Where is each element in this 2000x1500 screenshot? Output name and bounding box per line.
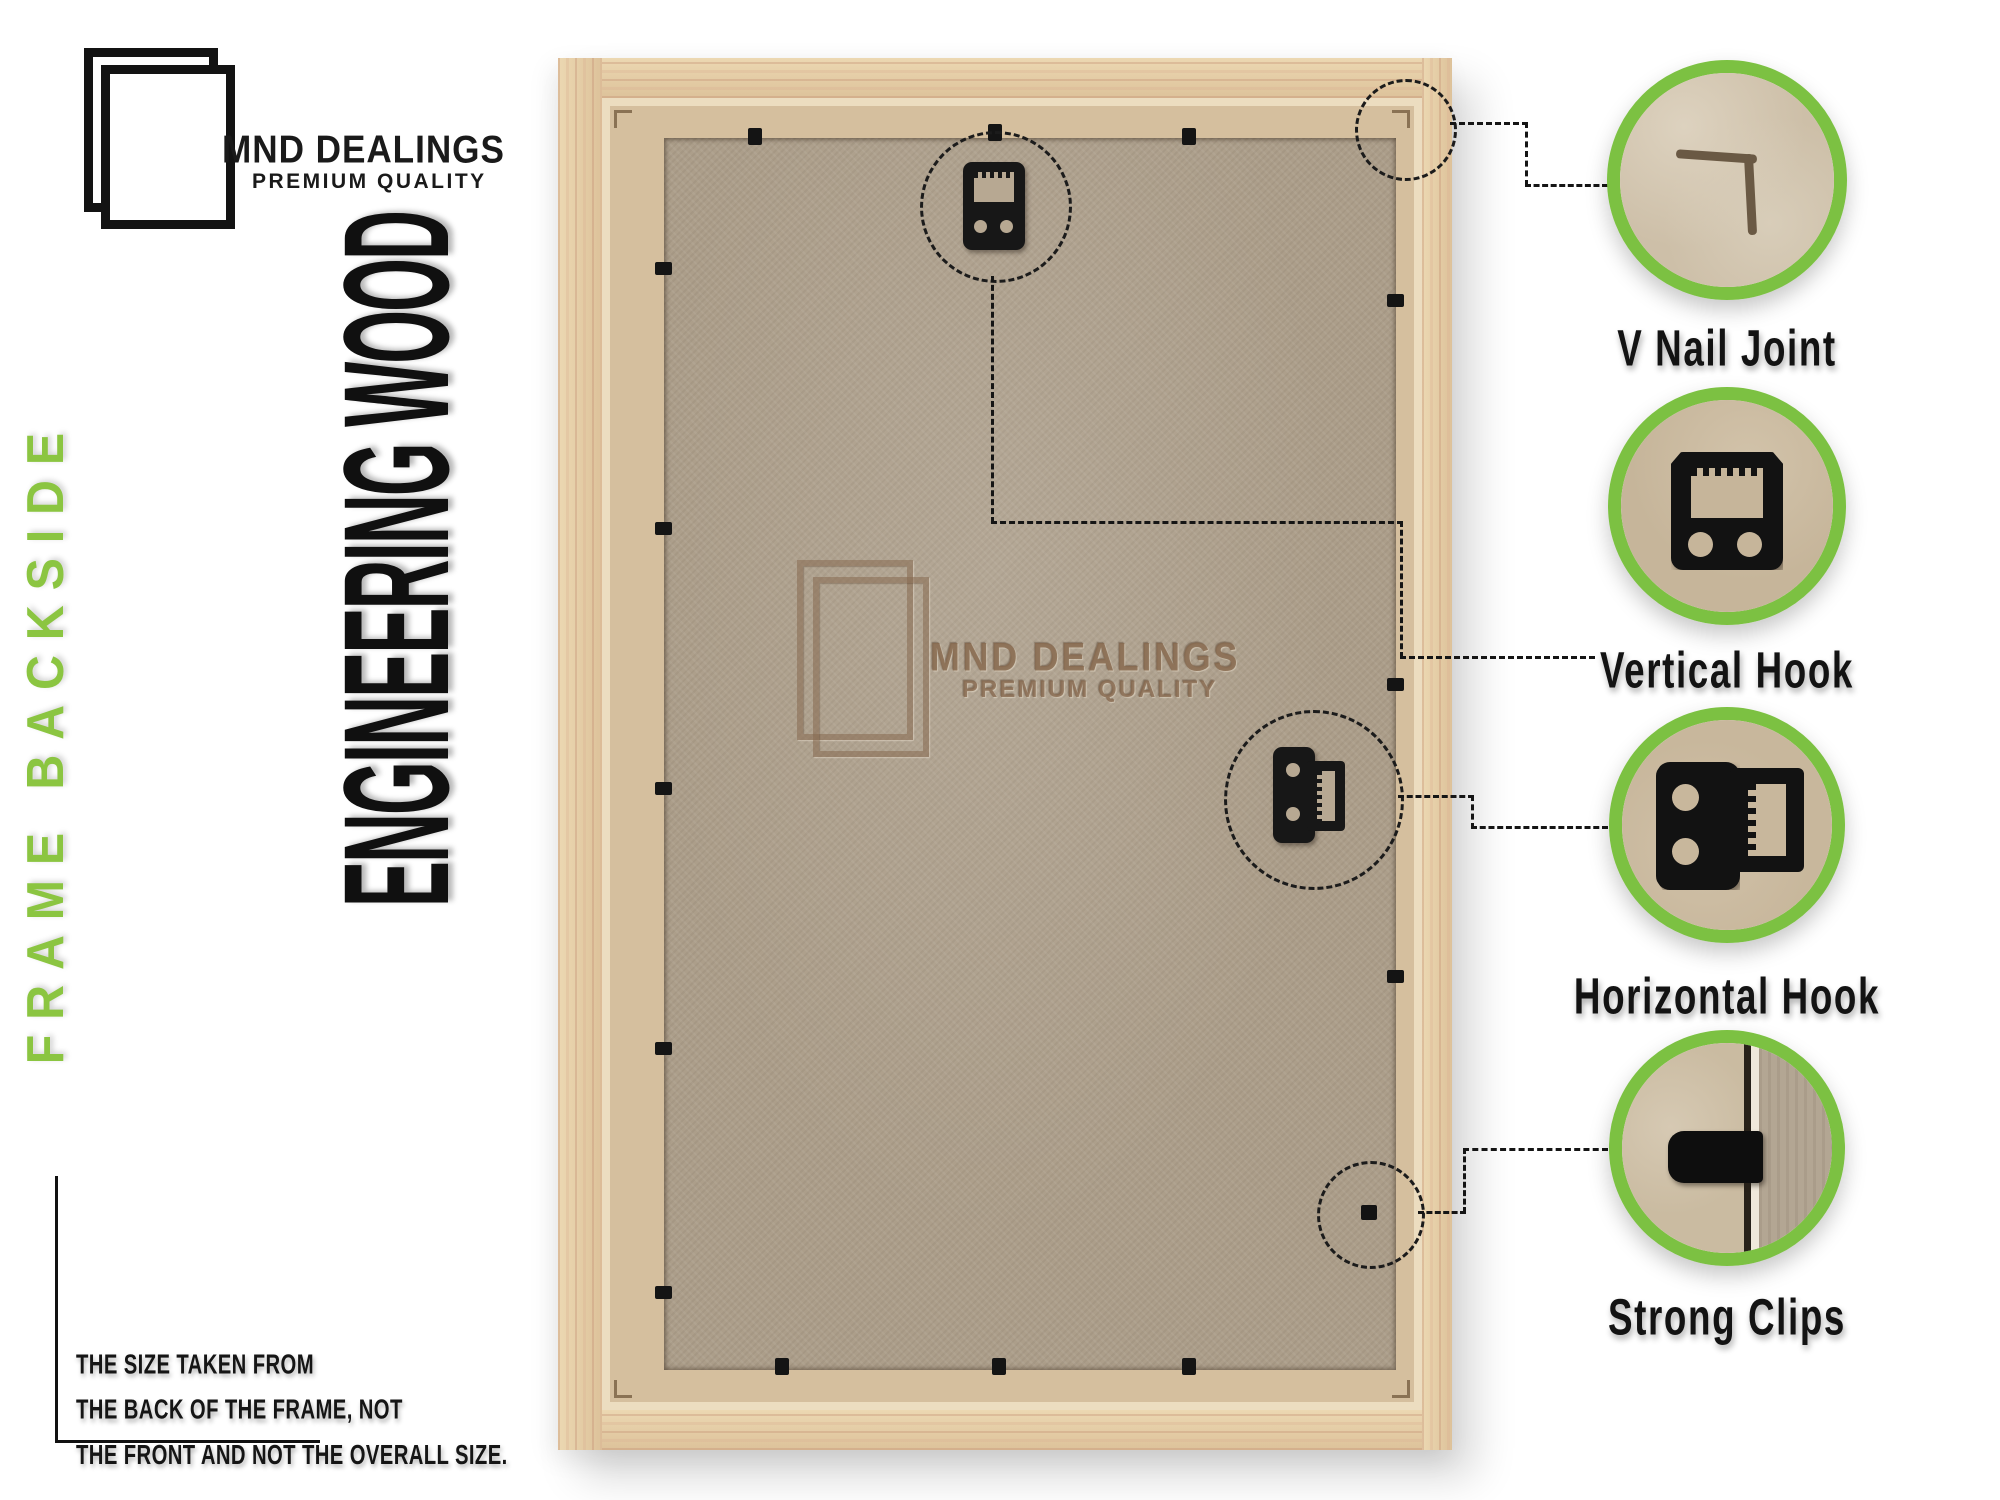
connector-vertical-hook bbox=[991, 276, 994, 523]
callout-circle-vertical-hook bbox=[1608, 387, 1846, 625]
frame-clip bbox=[655, 262, 672, 275]
screw-hole bbox=[1672, 838, 1699, 865]
material-label-wrap: ENGINEERING WOOD bbox=[338, 212, 455, 907]
side-label-wrap: FRAME BACKSIDE bbox=[26, 418, 67, 1064]
frame-clip bbox=[655, 1042, 672, 1055]
sawtooth-edge bbox=[1748, 784, 1756, 856]
connector-strong-clip bbox=[1463, 1148, 1466, 1213]
dashed-circle-vertical-hook bbox=[920, 131, 1072, 283]
screw-hole bbox=[1688, 532, 1713, 557]
brand-logo-frame-inner bbox=[101, 65, 235, 229]
horizontal-hook-window bbox=[1748, 784, 1786, 856]
watermark-name: MND DEALINGS bbox=[930, 636, 1240, 681]
frame-clip bbox=[992, 1358, 1006, 1375]
frame-clip bbox=[1387, 294, 1404, 307]
connector-strong-clip bbox=[1418, 1211, 1466, 1214]
connector-horizontal-hook bbox=[1398, 795, 1474, 798]
dashed-circle-corner-joint bbox=[1355, 79, 1457, 181]
frame-clip bbox=[775, 1358, 789, 1375]
callout-label-vertical-hook: Vertical Hook bbox=[1551, 640, 1903, 699]
brand-name: MND DEALINGS bbox=[222, 128, 505, 172]
v-nail-joint-photo bbox=[1620, 73, 1834, 287]
connector-v-nail bbox=[1450, 122, 1528, 125]
frame-clip bbox=[1182, 128, 1196, 145]
v-nail-mark-bottom-left bbox=[614, 1380, 632, 1398]
frame-wood-closeup bbox=[1759, 1043, 1832, 1253]
horizontal-hook-photo bbox=[1622, 720, 1832, 930]
frame-wood-right bbox=[1422, 58, 1452, 1450]
frame-clip bbox=[655, 1286, 672, 1299]
note-bracket-vertical bbox=[55, 1176, 58, 1442]
frame-clip bbox=[655, 522, 672, 535]
callout-circle-v-nail-joint bbox=[1607, 60, 1847, 300]
dashed-circle-horizontal-hook bbox=[1224, 710, 1404, 890]
connector-v-nail bbox=[1525, 122, 1528, 186]
sawtooth-edge bbox=[1691, 468, 1763, 476]
vertical-hook-zoomed bbox=[1671, 452, 1783, 570]
engineering-wood-label: ENGINEERING WOOD bbox=[338, 212, 455, 907]
size-note-line-2: THE BACK OF THE FRAME, NOT bbox=[76, 1387, 508, 1432]
frame-wood-bottom bbox=[558, 1410, 1452, 1450]
connector-vertical-hook bbox=[991, 521, 1403, 524]
watermark-tagline: PREMIUM QUALITY bbox=[962, 676, 1217, 704]
strong-clip-zoomed bbox=[1668, 1131, 1763, 1183]
frame-clip bbox=[655, 782, 672, 795]
callout-label-v-nail-joint: V Nail Joint bbox=[1551, 318, 1903, 377]
size-note: THE SIZE TAKEN FROM THE BACK OF THE FRAM… bbox=[76, 1342, 508, 1477]
dashed-circle-strong-clip bbox=[1317, 1161, 1425, 1269]
brand-tagline: PREMIUM QUALITY bbox=[252, 170, 487, 194]
callout-circle-horizontal-hook bbox=[1609, 707, 1845, 943]
miter-groove-vertical bbox=[1744, 154, 1757, 236]
size-note-line-1: THE SIZE TAKEN FROM bbox=[76, 1342, 508, 1387]
connector-horizontal-hook bbox=[1471, 795, 1474, 829]
frame-clip bbox=[748, 128, 762, 145]
strong-clips-photo bbox=[1622, 1043, 1832, 1253]
vertical-hook-window bbox=[1691, 468, 1763, 518]
screw-hole bbox=[1737, 532, 1762, 557]
corner-shadow-wedge bbox=[1629, 236, 1706, 292]
connector-strong-clip bbox=[1463, 1148, 1608, 1151]
v-nail-mark-bottom-right bbox=[1392, 1380, 1410, 1398]
horizontal-hook-plate bbox=[1656, 762, 1740, 890]
screw-hole bbox=[1672, 784, 1699, 811]
callout-circle-strong-clips bbox=[1609, 1030, 1845, 1266]
callout-label-strong-clips: Strong Clips bbox=[1551, 1287, 1903, 1346]
vertical-hook-photo bbox=[1621, 400, 1833, 612]
size-note-line-3: THE FRONT AND NOT THE OVERALL SIZE. bbox=[76, 1432, 508, 1477]
connector-horizontal-hook bbox=[1471, 826, 1608, 829]
horizontal-hook-loop bbox=[1730, 768, 1804, 872]
v-nail-mark-top-left bbox=[614, 110, 632, 128]
horizontal-hook-zoomed bbox=[1656, 762, 1806, 890]
frame-clip bbox=[1182, 1358, 1196, 1375]
frame-backside-label: FRAME BACKSIDE bbox=[26, 418, 67, 1064]
frame-clip bbox=[1387, 678, 1404, 691]
frame-wood-left bbox=[558, 58, 602, 1450]
frame-wood-top bbox=[558, 58, 1452, 98]
frame-clip bbox=[1387, 970, 1404, 983]
connector-v-nail bbox=[1525, 184, 1608, 187]
watermark-logo-frame-inner bbox=[813, 577, 929, 757]
callout-label-horizontal-hook: Horizontal Hook bbox=[1551, 966, 1903, 1025]
connector-vertical-hook bbox=[1400, 521, 1403, 658]
